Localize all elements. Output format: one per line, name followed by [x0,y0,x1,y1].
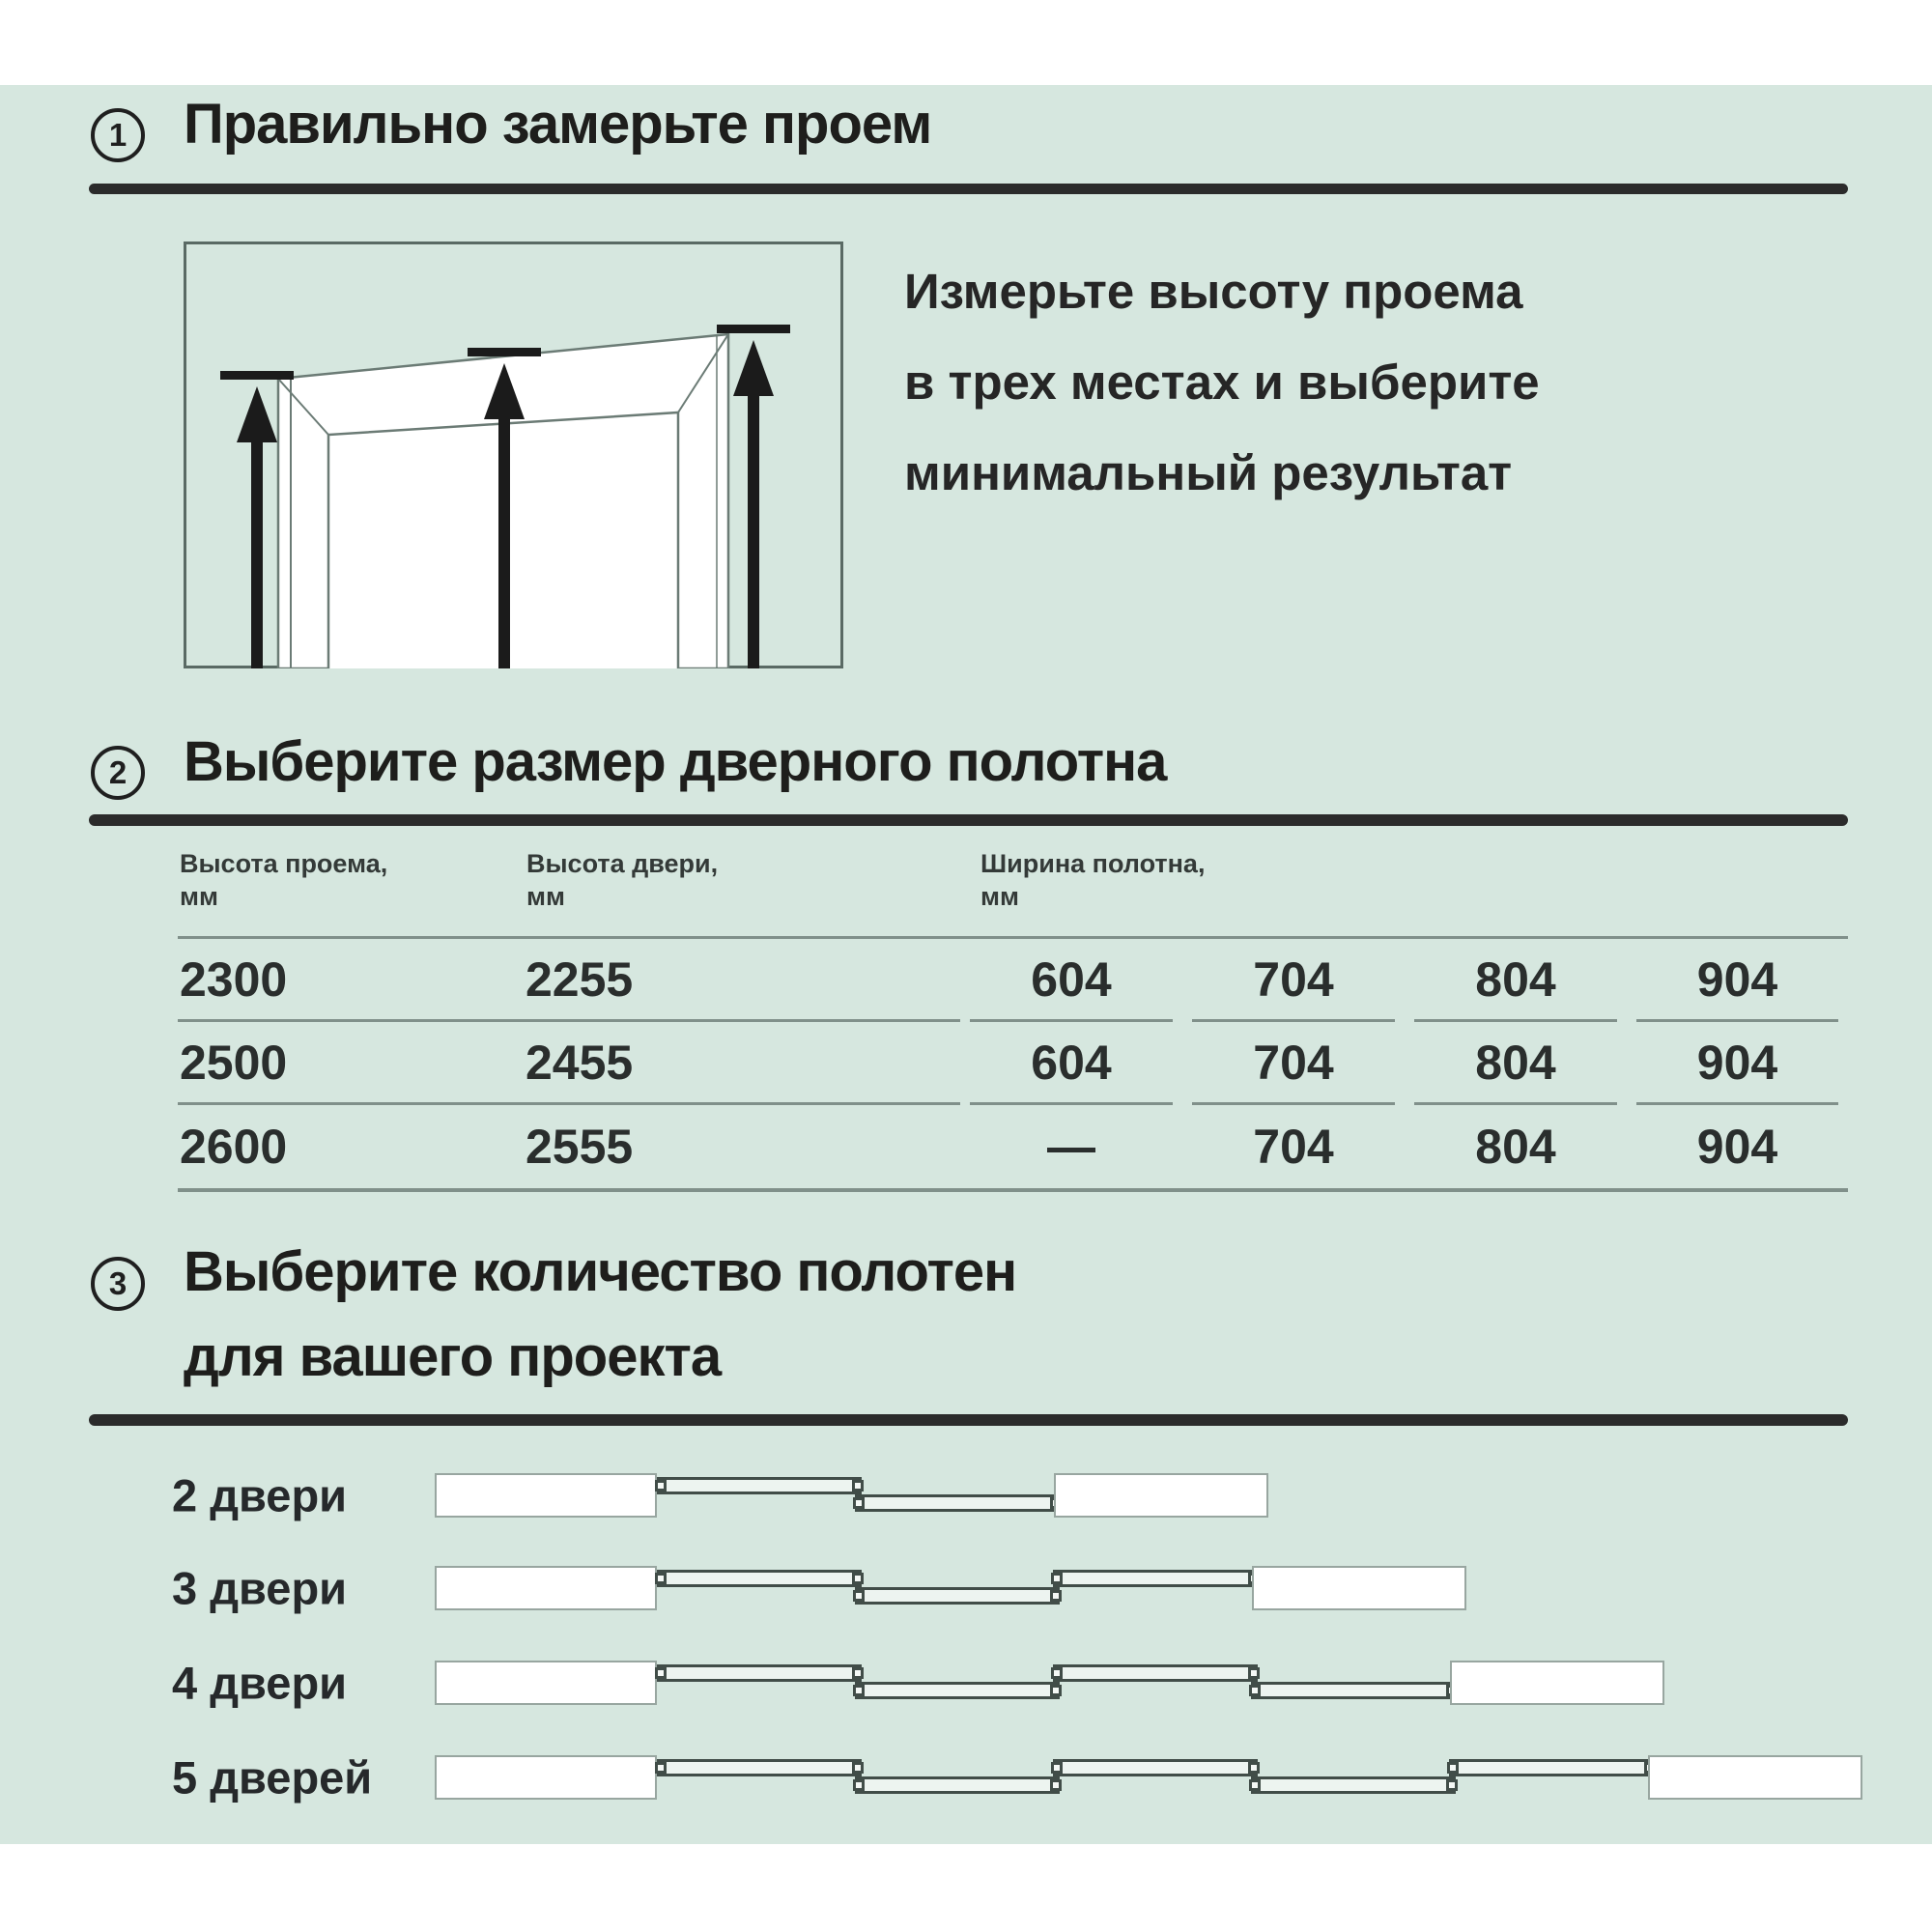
step-2-title: Выберите размер дверного полотна [184,733,1166,791]
width-cell: 904 [1636,1105,1838,1188]
table-row: 2500 2455 604 704 804 904 [178,1022,1848,1105]
door-leaf-plan [1251,1682,1456,1699]
door-count-option-4: 4 двери [0,1661,1932,1705]
door-leaf-plan [657,1477,862,1494]
track-roller [1050,1779,1062,1791]
wall-section-left [435,1566,657,1610]
door-leaf-plan [1251,1776,1456,1794]
step-2-badge: 2 [91,746,145,800]
step-2-underline [89,814,1848,826]
track-roller [655,1762,667,1774]
col-header-door-height: Высота двери, мм [526,847,718,913]
width-cell: 604 [970,1022,1173,1105]
table-body: 2300 2255 604 704 804 904 2500 2455 604 … [178,939,1848,1188]
door-count-label: 3 двери [172,1562,347,1615]
track-roller [655,1573,667,1584]
door-leaf-plan [657,1570,862,1587]
track-roller [852,1667,864,1679]
step-1-description: Измерьте высоту проемав трех местах и вы… [904,246,1540,519]
track-roller [1249,1685,1261,1696]
header-unit: мм [526,880,718,913]
door-leaf-plan [855,1682,1060,1699]
track-roller [852,1480,864,1492]
header-text: Ширина полотна, [980,847,1205,880]
width-cell: 604 [970,939,1173,1022]
track-roller [853,1685,865,1696]
door-size-table: Высота проема, мм Высота двери, мм Ширин… [178,826,1848,1192]
door-count-option-5: 5 дверей [0,1755,1932,1800]
track-roller [1051,1762,1063,1774]
header-unit: мм [980,880,1205,913]
step-3-badge: 3 [91,1257,145,1311]
door-leaf-plan [657,1759,862,1776]
step-1-number: 1 [109,117,127,154]
door-height-cell: 2555 [526,1105,960,1188]
step-3-title-line-1: Выберите количество полотен [184,1243,1016,1301]
step-1-underline [89,184,1848,194]
step-3-title-line-2: для вашего проекта [184,1328,721,1386]
wall-section-left [435,1755,657,1800]
door-leaf-plan [855,1494,1060,1512]
width-cell: 904 [1636,1022,1838,1105]
track-roller [1248,1667,1260,1679]
table-row: 2600 2555 — 704 804 904 [178,1105,1848,1188]
wall-section-right [1648,1755,1862,1800]
width-cell: 704 [1192,1022,1395,1105]
step-3-number: 3 [109,1265,127,1302]
door-count-label: 2 двери [172,1469,347,1522]
door-opening-measure-diagram [184,241,843,668]
table-header-row: Высота проема, мм Высота двери, мм Ширин… [178,826,1848,939]
door-height-cell: 2455 [526,1022,960,1105]
step-1-title: Правильно замерьте проем [184,96,931,154]
opening-height-cell: 2600 [178,1105,526,1188]
opening-height-cell: 2500 [178,1022,526,1105]
col-header-leaf-width: Ширина полотна, мм [980,847,1205,913]
track-roller [1051,1573,1063,1584]
door-measure-infographic: 1 Правильно замерьте проем [0,0,1932,1932]
step-3-underline [89,1414,1848,1426]
door-leaf-plan [1449,1759,1654,1776]
track-roller [1050,1590,1062,1602]
door-leaf-plan [855,1776,1060,1794]
wall-section-left [435,1661,657,1705]
track-roller [1050,1685,1062,1696]
track-roller [1446,1779,1458,1791]
header-text: Высота проема, [180,847,387,880]
width-cell: 704 [1192,1105,1395,1188]
door-count-option-2: 2 двери [0,1473,1932,1518]
track-roller [1248,1762,1260,1774]
header-unit: мм [180,880,387,913]
door-leaf-plan [657,1664,862,1682]
header-text: Высота двери, [526,847,718,880]
door-count-label: 5 дверей [172,1751,372,1804]
width-cell: 904 [1636,939,1838,1022]
track-roller [655,1667,667,1679]
step-2-number: 2 [109,754,127,791]
track-roller [852,1573,864,1584]
step-1-badge: 1 [91,108,145,162]
width-cell: 804 [1414,1105,1617,1188]
width-cell: 804 [1414,939,1617,1022]
door-opening-diagram-svg [184,241,843,668]
track-roller [852,1762,864,1774]
door-count-label: 4 двери [172,1657,347,1710]
track-roller [853,1779,865,1791]
door-leaf-plan [1053,1664,1258,1682]
door-leaf-plan [1053,1759,1258,1776]
description-line: в трех местах и выберите [904,337,1540,428]
table-row: 2300 2255 604 704 804 904 [178,939,1848,1022]
track-roller [853,1497,865,1509]
track-roller [1249,1779,1261,1791]
track-roller [1051,1667,1063,1679]
wall-section-right [1054,1473,1268,1518]
door-count-option-3: 3 двери [0,1566,1932,1610]
col-header-opening-height: Высота проема, мм [180,847,387,913]
track-roller [1447,1762,1459,1774]
width-cell: 804 [1414,1022,1617,1105]
track-roller [853,1590,865,1602]
wall-section-right [1450,1661,1664,1705]
wall-section-left [435,1473,657,1518]
width-cell: 704 [1192,939,1395,1022]
opening-height-cell: 2300 [178,939,526,1022]
description-line: минимальный результат [904,428,1540,519]
description-line: Измерьте высоту проема [904,246,1540,337]
door-leaf-plan [1053,1570,1258,1587]
wall-section-right [1252,1566,1466,1610]
door-height-cell: 2255 [526,939,960,1022]
door-leaf-plan [855,1587,1060,1605]
width-cell: — [970,1105,1173,1188]
track-roller [655,1480,667,1492]
